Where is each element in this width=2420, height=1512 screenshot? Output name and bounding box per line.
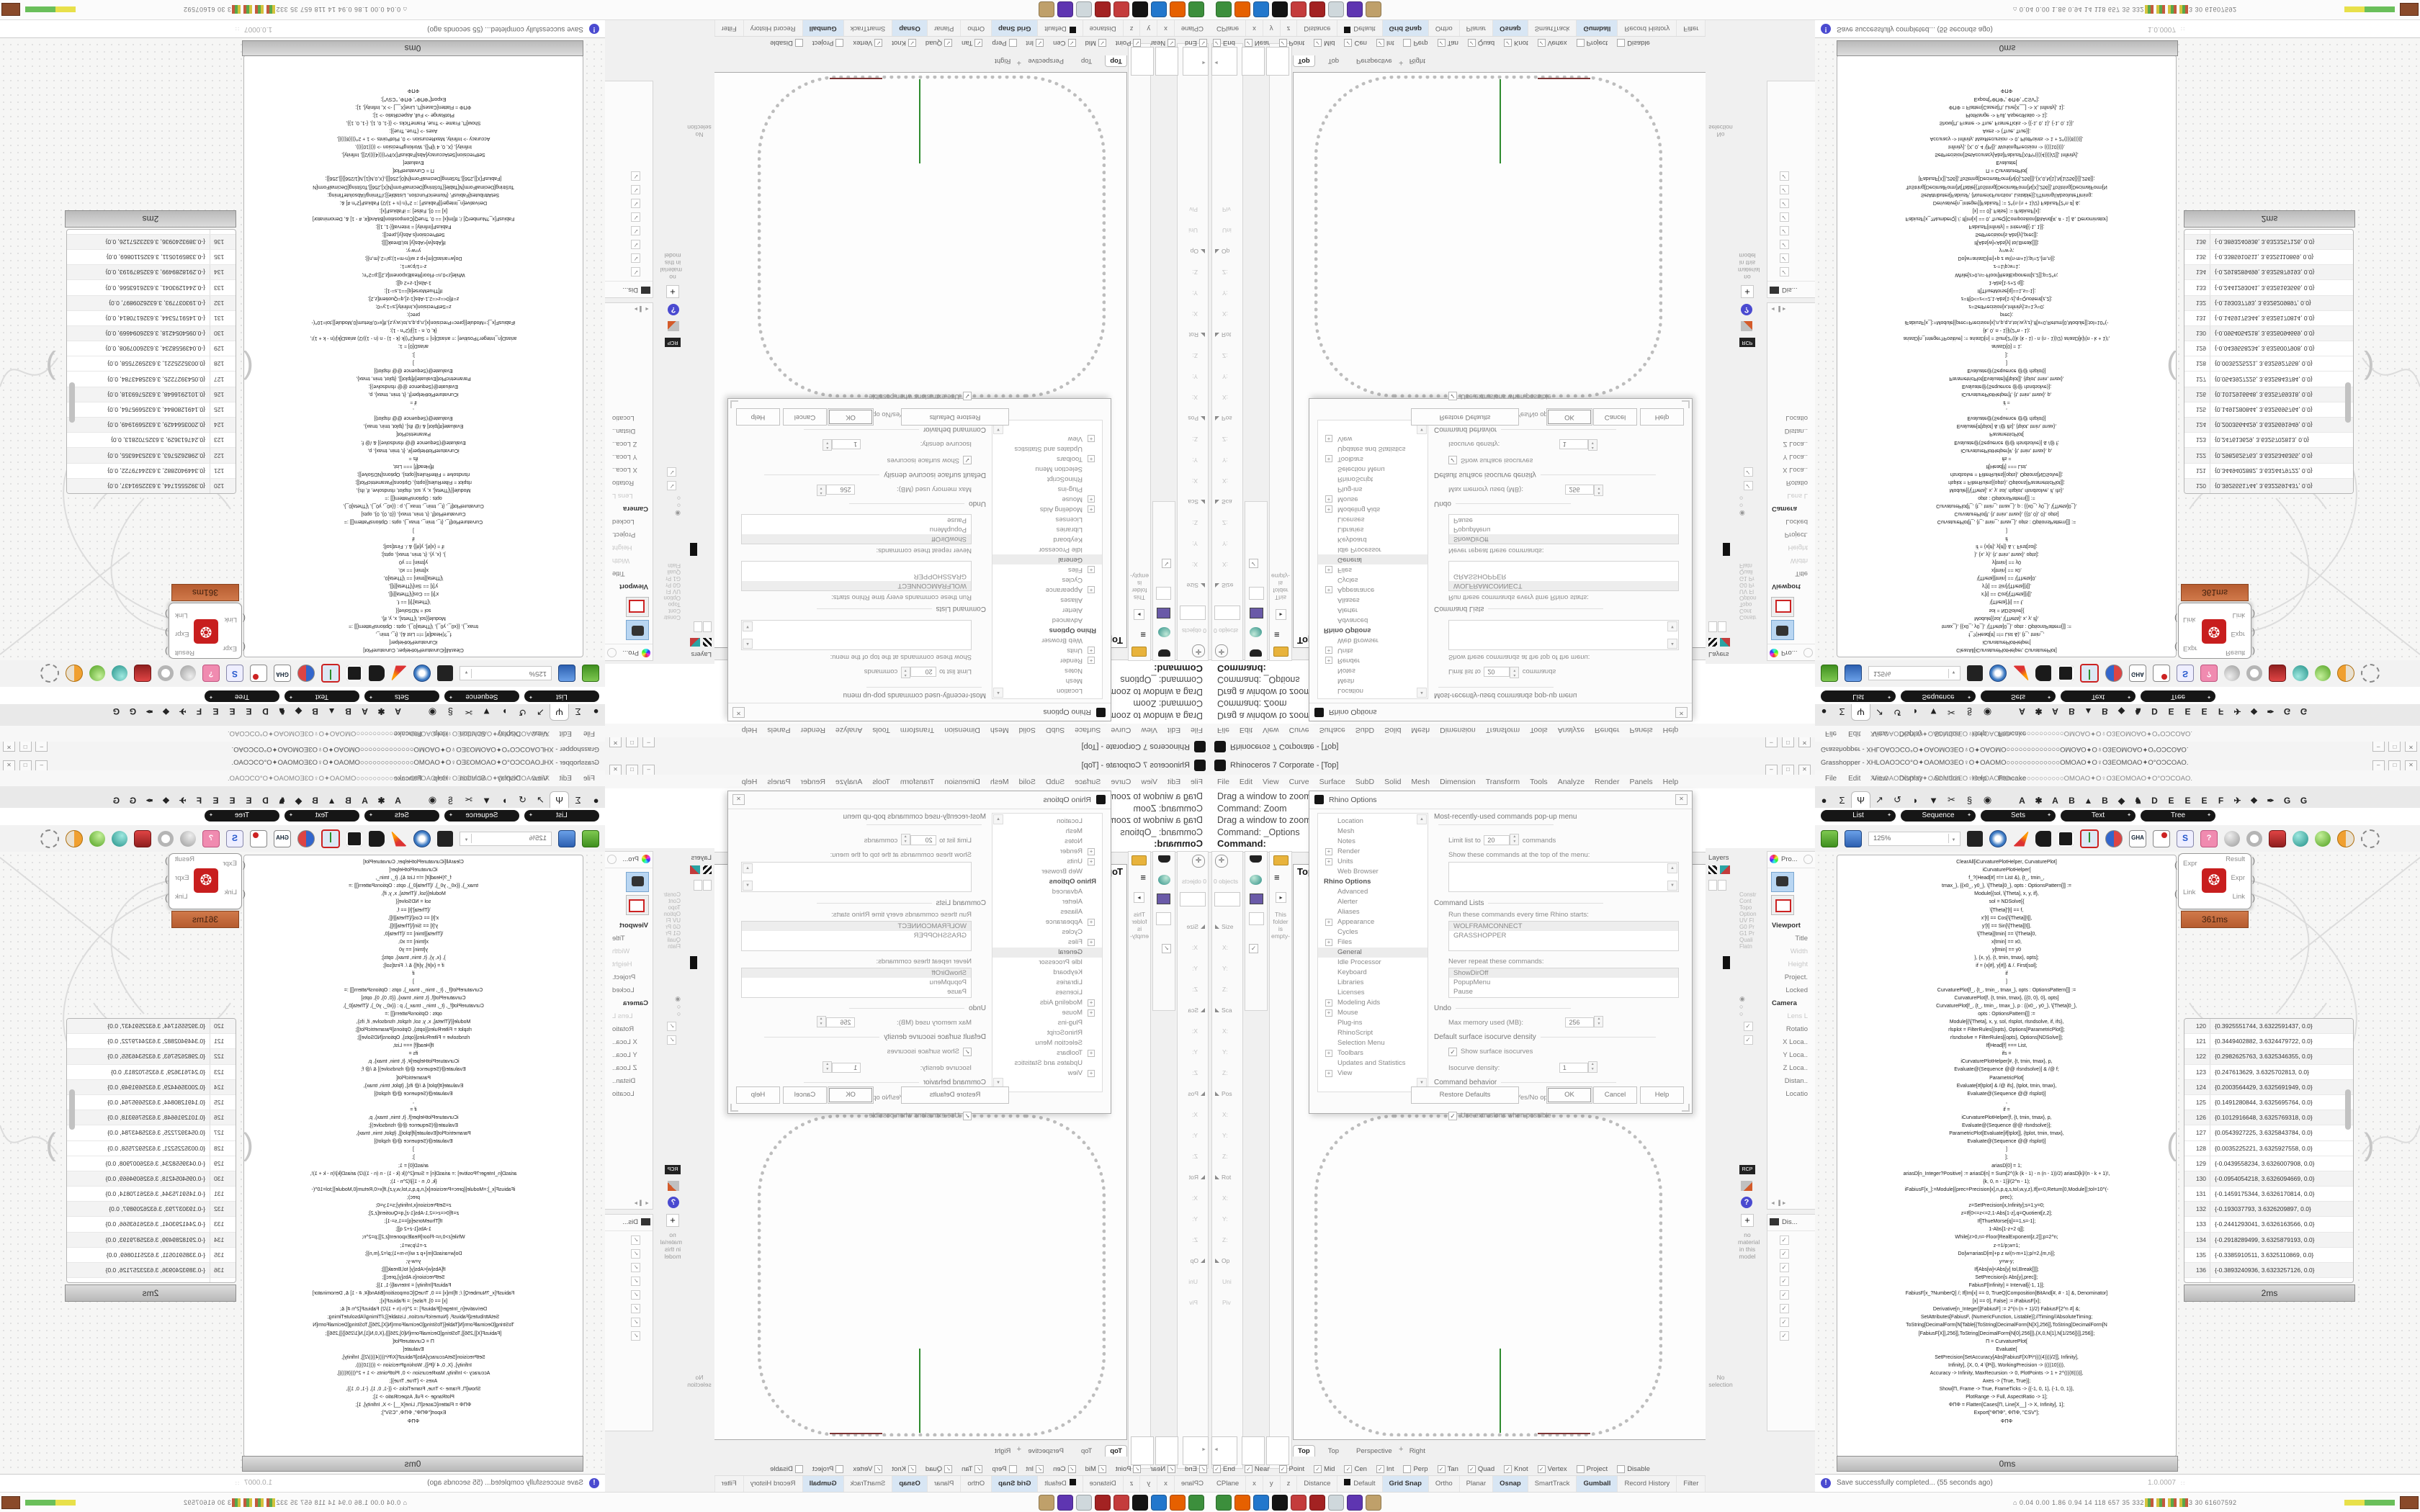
panel-nav-icons[interactable]: ◄ ▐ ► <box>633 1201 650 1206</box>
wolfram-code-panel[interactable]: ClearAll[iCurvaturePlotHelper, Curvature… <box>1837 855 2177 1457</box>
display-check[interactable]: ✓ <box>632 1318 641 1327</box>
display-check[interactable]: ✓ <box>632 1277 641 1286</box>
category-pill[interactable]: Sequence <box>444 690 519 702</box>
osnap-toggle[interactable]: ✓End <box>1185 40 1207 48</box>
viewport-property[interactable]: Locatio <box>1767 1088 1814 1101</box>
category-pill[interactable]: Tree <box>2141 690 2215 702</box>
options-tree-item[interactable]: Selection Menu <box>992 464 1102 474</box>
menu-item[interactable]: Analyze <box>1558 778 1585 786</box>
help-icon[interactable]: ? <box>668 1197 679 1208</box>
swatch-box[interactable] <box>1156 587 1171 600</box>
viewport-tab[interactable]: Perspective <box>1352 55 1397 66</box>
page-icon-1[interactable] <box>1708 880 1717 891</box>
listbox-scroll-down-icon[interactable]: ▼ <box>743 881 753 891</box>
maximize-button[interactable]: □ <box>1782 737 1794 747</box>
status-cell[interactable]: y <box>1263 20 1281 36</box>
notepad-taskbar-icon[interactable] <box>1076 1 1092 17</box>
status-cell[interactable]: SmartTrack <box>1528 1476 1577 1492</box>
behavior-checkbox[interactable]: ✓Use extrusions when possible <box>1448 1108 1686 1121</box>
status-cell[interactable]: z <box>1281 20 1298 36</box>
osnap-toggle[interactable]: ✓Knot <box>1504 40 1528 48</box>
new-viewport-icon[interactable]: + <box>1399 1445 1403 1454</box>
options-tree-item[interactable]: Mesh <box>1318 675 1428 685</box>
options-tree-item[interactable]: Location <box>1318 816 1428 827</box>
component-tab-icon[interactable]: § <box>1960 792 1978 808</box>
preview-eye-icon[interactable] <box>1989 830 2007 847</box>
dialog-resize-grip[interactable] <box>1682 400 1690 408</box>
undo-spinner[interactable]: ▲▼ <box>817 485 826 496</box>
firefox-taskbar-icon[interactable] <box>1234 1495 1250 1511</box>
options-tree-item[interactable]: General <box>1318 948 1428 958</box>
menu-item[interactable]: Dimension <box>1440 778 1476 786</box>
display-check[interactable]: ✓ <box>1780 1290 1789 1300</box>
options-tree-item[interactable]: Updates and Statistics <box>1318 1058 1428 1068</box>
osnap-toggle[interactable]: ✓Cen <box>1344 40 1366 48</box>
options-tree-item[interactable]: Aliases <box>1318 907 1428 917</box>
viewport-property[interactable]: X Loca.. <box>606 463 653 476</box>
viewport-property[interactable]: Z Loca.. <box>606 437 653 450</box>
teal-sphere-icon[interactable] <box>112 831 127 847</box>
output-port-arc[interactable]: ) <box>2252 609 2255 619</box>
viewport-property[interactable]: Z Loca.. <box>1767 1062 1814 1075</box>
osnap-toggle[interactable]: ✓Point <box>1279 1465 1305 1473</box>
viewport-tab[interactable]: Right <box>990 55 1015 66</box>
solver-icon[interactable]: S <box>226 665 243 683</box>
options-tree-item[interactable]: Advanced <box>992 887 1102 897</box>
viewport-property[interactable]: X Loca.. <box>1767 1036 1814 1049</box>
menu-item[interactable]: Surface <box>1319 726 1345 735</box>
status-cell[interactable]: Planar <box>927 1476 960 1492</box>
menu-item[interactable]: Analyze <box>835 778 862 786</box>
plugin-tab[interactable]: ✈ <box>2229 793 2246 808</box>
viewport-property[interactable]: Height <box>1767 541 1814 554</box>
doc-locker-icon[interactable] <box>2153 830 2170 847</box>
never-command-item[interactable]: ShowDirOff <box>742 534 971 544</box>
menu-item[interactable]: Transform <box>1486 726 1520 735</box>
plugin-tab[interactable]: G <box>2295 704 2312 719</box>
dock-checkbox[interactable]: ✓ <box>1162 944 1171 953</box>
osnap-toggle[interactable]: ✓Quad <box>926 1465 952 1473</box>
options-tree-item[interactable]: Plug-ins <box>1318 484 1428 494</box>
tree-scroll-up-icon[interactable]: ▲ <box>1417 814 1427 824</box>
tree-scroll-down-icon[interactable]: ▼ <box>1417 424 1427 434</box>
status-cell[interactable]: Distance <box>1297 20 1337 36</box>
options-tree-item[interactable]: Notes <box>1318 837 1428 847</box>
rhino-window-titlebar[interactable]: Rhinoceros 7 Corporate - [Top] – □ ✕ <box>1210 756 1815 775</box>
options-tree-item[interactable]: Idle Processor <box>1318 544 1428 554</box>
options-tree-item[interactable]: Toolbars <box>992 454 1102 464</box>
side-check-1[interactable]: ✓ <box>1744 1022 1753 1031</box>
rhino-options-dialog[interactable]: Rhino Options ✕ LocationMeshNotesRenderU… <box>1309 398 1693 721</box>
osnap-toggle[interactable]: ✓Quad <box>1468 40 1494 48</box>
viewport-tab[interactable]: Top <box>1293 55 1315 67</box>
category-pill[interactable]: Text <box>2061 690 2136 702</box>
menu-item[interactable]: View <box>1263 726 1279 735</box>
viewport-property[interactable]: Project. <box>1767 971 1814 984</box>
display-check[interactable]: ✓ <box>1780 1304 1789 1313</box>
viewport-tab[interactable]: Top <box>1077 55 1096 66</box>
viewport-property[interactable]: Z Loca.. <box>606 1062 653 1075</box>
status-cell[interactable]: SmartTrack <box>843 20 892 36</box>
display-check[interactable]: ✓ <box>1780 212 1789 222</box>
display-check[interactable]: ✓ <box>1780 199 1789 208</box>
filter-input[interactable] <box>1214 892 1240 906</box>
component-tab-icon[interactable]: ↗ <box>1870 704 1888 721</box>
category-pill[interactable]: List <box>1821 690 1896 702</box>
status-cell[interactable]: z <box>1123 1476 1140 1492</box>
plugin-tab[interactable]: ❖ <box>158 704 174 719</box>
swatch-box[interactable] <box>1156 912 1171 925</box>
input-port-arc[interactable]: ( <box>243 860 246 870</box>
options-tree-item[interactable]: View <box>1318 433 1428 444</box>
help-icon[interactable]: ? <box>668 304 679 315</box>
table-scrollbar[interactable] <box>2345 1089 2351 1130</box>
menu-item[interactable]: View <box>1141 778 1157 786</box>
status-cell[interactable]: Planar <box>927 20 960 36</box>
menu-item[interactable]: Surface <box>1075 726 1101 735</box>
brush-icon[interactable] <box>668 1181 679 1191</box>
ring-icon[interactable] <box>158 831 174 847</box>
display-tab-label[interactable]: Dis... <box>622 286 638 294</box>
menu-item[interactable]: Panels <box>767 778 790 786</box>
options-tree-item[interactable]: Notes <box>992 837 1102 847</box>
green-sphere-icon[interactable] <box>89 831 105 847</box>
component-tab-icon[interactable]: § <box>1960 704 1978 720</box>
mystery-box-icon[interactable]: ? <box>202 830 220 847</box>
wire-pen-icon[interactable] <box>2013 666 2029 682</box>
page-icon-2[interactable] <box>694 880 702 891</box>
cap-icon[interactable] <box>1250 855 1262 863</box>
options-tree-item[interactable]: Appearance <box>1318 585 1428 595</box>
osnap-toggle[interactable]: ✓Int <box>1026 1465 1044 1473</box>
component-tab-icon[interactable]: Σ <box>569 704 587 720</box>
save-file-icon[interactable] <box>558 665 575 683</box>
viewport-property[interactable]: Width <box>1767 554 1814 567</box>
floppy-save-taskbar-icon[interactable] <box>1253 1 1269 17</box>
menu-item[interactable]: Render <box>801 778 825 786</box>
sphere-icon[interactable] <box>1250 627 1262 637</box>
viewport-property[interactable]: Title <box>606 932 653 945</box>
floppy-save-taskbar-icon[interactable] <box>1151 1495 1167 1511</box>
layer-swatch[interactable] <box>690 956 697 969</box>
layers-tab[interactable]: Layers <box>691 650 712 658</box>
options-tree-item[interactable]: Aliases <box>992 595 1102 605</box>
help-icon[interactable]: ? <box>1741 304 1752 315</box>
minimize-button[interactable]: – <box>35 760 48 771</box>
gray-sphere-icon[interactable] <box>180 831 196 847</box>
status-cell[interactable]: Filter <box>1677 1476 1706 1492</box>
grasshopper-canvas[interactable]: ClearAll[iCurvaturePlotHelper, Curvature… <box>1815 852 2420 1474</box>
brush-icon[interactable] <box>1741 321 1752 331</box>
teal-sphere-icon[interactable] <box>112 666 127 682</box>
display-check[interactable]: ✓ <box>632 1290 641 1300</box>
save-file-icon[interactable] <box>1845 665 1862 683</box>
speaker-icon[interactable] <box>346 831 362 847</box>
status-cell[interactable]: Gumball <box>1577 1476 1618 1492</box>
doc-locker-icon[interactable] <box>250 665 267 683</box>
viewport-property[interactable]: Title <box>1767 932 1814 945</box>
never-command-item[interactable]: ShowDirOff <box>742 968 971 978</box>
rhino-app-taskbar-icon[interactable] <box>1272 1495 1288 1511</box>
plugin-tab[interactable]: ♞ <box>274 793 290 808</box>
osnap-toggle[interactable]: Project <box>1577 40 1608 48</box>
help-button[interactable]: Help <box>1640 1086 1684 1104</box>
dock-checkbox[interactable]: ✓ <box>1249 559 1258 568</box>
osnap-toggle[interactable]: ✓End <box>1213 40 1235 48</box>
status-cell[interactable]: z <box>1123 20 1140 36</box>
maximize-button[interactable]: □ <box>626 765 638 775</box>
rhino-window-titlebar[interactable]: Rhinoceros 7 Corporate - [Top] – □ ✕ <box>605 737 1210 756</box>
menu-item[interactable]: Edit <box>1848 775 1860 783</box>
palette-taskbar-icon[interactable] <box>1366 1 1381 17</box>
dialog-close-icon[interactable]: ✕ <box>1675 707 1688 718</box>
options-tree-item[interactable]: Mouse <box>992 494 1102 504</box>
status-cell[interactable]: CPlane <box>1174 20 1210 36</box>
minimize-button[interactable]: – <box>1765 765 1778 775</box>
maximize-button[interactable]: □ <box>19 760 32 771</box>
component-tab-icon[interactable]: ↗ <box>1870 791 1888 808</box>
display-check[interactable]: ✓ <box>632 267 641 276</box>
viewport-property[interactable]: Locked <box>606 984 653 997</box>
osnap-toggle[interactable]: ✓Int <box>1376 1465 1394 1473</box>
plugin-tab[interactable]: ▲ <box>323 793 340 808</box>
display-check[interactable]: ✓ <box>1780 253 1789 263</box>
viewport-property[interactable]: Locked <box>1767 515 1814 528</box>
menu-item[interactable]: Render <box>801 726 825 735</box>
plugin-tab[interactable]: ▲ <box>2080 793 2097 808</box>
data-table-panel[interactable]: 120{0.3925551744, 3.6322591437, 0.0}121{… <box>2184 229 2354 494</box>
options-tree-item[interactable]: Aliases <box>1318 595 1428 605</box>
plugin-tab[interactable]: E <box>2163 704 2179 719</box>
viewport-tab[interactable]: Perspective <box>1023 1446 1068 1457</box>
plugin-tab[interactable]: ✈ <box>174 704 191 719</box>
grasshopper-titlebar[interactable]: Grasshopper - XHLOAOƆCO°O✦OAOMO3EO♀O✦OAO… <box>0 756 605 771</box>
side-check-2[interactable]: ✓ <box>668 1035 677 1045</box>
category-pill[interactable]: Sets <box>364 810 439 822</box>
folder-icon[interactable] <box>1273 855 1289 865</box>
new-viewport-icon[interactable]: + <box>1399 58 1403 67</box>
viewport-property[interactable]: Y Loca.. <box>1767 450 1814 463</box>
teal-sphere-icon[interactable] <box>2293 831 2308 847</box>
options-tree-item[interactable]: Keyboard <box>992 534 1102 544</box>
behavior-checkbox[interactable]: ✓Use extrusions when possible <box>1448 391 1686 404</box>
zoom-dropdown[interactable]: 125% ▼ <box>460 832 552 846</box>
grasshopper-canvas[interactable]: ClearAll[iCurvaturePlotHelper, Curvature… <box>0 38 605 660</box>
expression-component[interactable]: ( Expr ( Link Result ) Expr ) Link ) ❂ <box>2178 853 2251 909</box>
notepad-taskbar-icon[interactable] <box>1328 1495 1344 1511</box>
options-tree-item[interactable]: General <box>992 948 1102 958</box>
viewport-property[interactable]: Distan.. <box>1767 424 1814 437</box>
viewport-property[interactable]: Lens L <box>606 489 653 502</box>
save-file-icon[interactable] <box>558 830 575 847</box>
restore-defaults-button[interactable]: Restore Defaults <box>901 1086 1009 1104</box>
menu-item[interactable]: File <box>583 775 595 783</box>
sphere-icon[interactable] <box>1158 627 1170 637</box>
status-cell[interactable]: Grid Snap <box>1383 1476 1429 1492</box>
viewport-property[interactable]: Camera <box>606 997 653 1010</box>
plugin-tab[interactable]: D <box>257 704 274 719</box>
output-port-arc[interactable]: ) <box>165 647 168 657</box>
output-port-arc[interactable]: ) <box>2252 893 2255 903</box>
osnap-toggle[interactable]: ✓Quad <box>1468 1465 1494 1473</box>
plugin-tab[interactable]: A <box>357 704 373 719</box>
viewport-property[interactable]: Width <box>606 945 653 958</box>
folder-icon[interactable] <box>1131 855 1147 865</box>
rhino-window-titlebar[interactable]: Rhinoceros 7 Corporate - [Top] – □ ✕ <box>605 756 1210 775</box>
menu-item[interactable]: Surface <box>1319 778 1345 786</box>
status-cell[interactable]: Default <box>1038 1476 1083 1492</box>
help-button[interactable]: Help <box>736 408 780 426</box>
display-check[interactable]: ✓ <box>1780 226 1789 235</box>
viewport-colors-icon[interactable] <box>690 865 700 874</box>
osnap-toggle[interactable]: Project <box>812 1465 844 1473</box>
options-tree-item[interactable]: Toolbars <box>1318 1048 1428 1058</box>
menu-item[interactable]: Mesh <box>1411 726 1430 735</box>
menu-item[interactable]: Edit <box>1240 778 1252 786</box>
dialog-resize-grip[interactable] <box>730 1104 738 1112</box>
terminal-taskbar-icon[interactable] <box>1216 1 1232 17</box>
help-icon[interactable]: ? <box>1741 1197 1752 1208</box>
viewport-property[interactable]: Distan.. <box>606 424 653 437</box>
status-cell[interactable]: Grid Snap <box>991 1476 1037 1492</box>
status-cell[interactable]: Gumball <box>802 1476 843 1492</box>
selection-circle-icon[interactable] <box>40 665 59 683</box>
options-tree-item[interactable]: Alerter <box>1318 897 1428 907</box>
dialog-close-icon[interactable]: ✕ <box>732 707 745 718</box>
viewport-tab[interactable]: Top <box>1324 1446 1343 1457</box>
ok-button[interactable]: OK <box>1546 1086 1592 1104</box>
undo-input[interactable]: 256 <box>1565 485 1594 495</box>
options-tree-item[interactable]: Selection Menu <box>1318 1038 1428 1048</box>
gear-icon[interactable] <box>607 855 617 864</box>
mystery-box-icon[interactable]: ? <box>2200 830 2218 847</box>
fabius-curve-points[interactable] <box>1314 76 1662 397</box>
isocurve-checkbox[interactable]: ✓ <box>963 456 972 464</box>
never-command-item[interactable]: Pause <box>1449 987 1678 996</box>
gear-icon[interactable] <box>1803 648 1813 657</box>
viewport-property[interactable]: Y Loca.. <box>606 450 653 463</box>
dialog-titlebar[interactable]: Rhino Options ✕ <box>728 791 1111 809</box>
output-port-arc[interactable]: ) <box>2252 855 2255 865</box>
options-tree-item[interactable]: Plug-ins <box>1318 1018 1428 1028</box>
rhino-app-taskbar-icon[interactable] <box>1132 1 1148 17</box>
rhino-app-taskbar-icon[interactable] <box>1132 1495 1148 1511</box>
menu-item[interactable]: Curve <box>1289 726 1309 735</box>
status-resize-grip[interactable]: ∷ <box>236 1480 239 1487</box>
output-port-arc[interactable]: ) <box>165 893 168 903</box>
status-cell[interactable]: Ortho <box>1429 20 1460 36</box>
display-check[interactable]: ✓ <box>632 199 641 208</box>
output-port-arc[interactable]: ) <box>2252 647 2255 657</box>
menu-item[interactable]: Panels <box>1630 726 1653 735</box>
viewport-property[interactable]: Project. <box>606 971 653 984</box>
layers-tab[interactable]: Layers <box>1708 650 1729 658</box>
gray-sphere-icon[interactable] <box>2224 831 2240 847</box>
axes-widget-icon[interactable] <box>321 665 340 683</box>
close-button[interactable]: ✕ <box>1798 765 1811 775</box>
viewport-property[interactable]: Height <box>606 958 653 971</box>
table-scrollbar[interactable] <box>2345 382 2351 423</box>
viewport-tab[interactable]: Top <box>1293 1445 1315 1457</box>
menu-item[interactable]: Panels <box>767 726 790 735</box>
zoom-extents-icon[interactable] <box>437 831 453 847</box>
help-button[interactable]: Help <box>1640 408 1684 426</box>
page-icon-1[interactable] <box>1708 621 1717 632</box>
viewport-property[interactable]: X Loca.. <box>606 1036 653 1049</box>
status-cell[interactable]: SmartTrack <box>1528 20 1577 36</box>
gumball-icon[interactable]: ✛ <box>1192 644 1205 657</box>
firefox-taskbar-icon[interactable] <box>1234 1 1250 17</box>
options-tree-item[interactable]: Location <box>1318 685 1428 696</box>
options-tree-item[interactable]: Idle Processor <box>1318 958 1428 968</box>
expand-button[interactable]: ▸ <box>1276 609 1286 620</box>
category-pill[interactable]: List <box>524 810 599 822</box>
osnap-toggle[interactable]: Perp <box>1403 1465 1428 1473</box>
display-check[interactable]: ✓ <box>632 240 641 249</box>
viewport-property[interactable]: Rotatio <box>606 476 653 489</box>
page-icon-2[interactable] <box>1718 880 1726 891</box>
display-check[interactable]: ✓ <box>632 1304 641 1313</box>
gear-red-1-taskbar-icon[interactable] <box>1113 1495 1129 1511</box>
options-tree-item[interactable]: Idle Processor <box>992 958 1102 968</box>
never-command-item[interactable]: ShowDirOff <box>1449 534 1678 544</box>
viewport-property[interactable]: Camera <box>1767 997 1814 1010</box>
viewport-property[interactable]: Camera <box>1767 502 1814 515</box>
plugin-tab[interactable]: E <box>241 704 257 719</box>
minimize-button[interactable]: – <box>35 741 48 752</box>
component-tab-icon[interactable]: ◗ <box>496 704 514 720</box>
tree-scroll-up-icon[interactable]: ▲ <box>993 814 1003 824</box>
status-cell[interactable]: Ortho <box>1429 1476 1460 1492</box>
status-cell[interactable]: Filter <box>714 1476 743 1492</box>
status-cell[interactable]: CPlane <box>1210 20 1246 36</box>
notepad-taskbar-icon[interactable] <box>1328 1 1344 17</box>
ring-icon[interactable] <box>2246 666 2262 682</box>
viewport-property[interactable]: Viewport <box>1767 919 1814 932</box>
red-cylinder-icon[interactable] <box>2269 665 2286 683</box>
options-tree-item[interactable]: Advanced <box>992 615 1102 625</box>
viewport-property[interactable]: Viewport <box>1767 580 1814 593</box>
menu-item[interactable]: Surface <box>1075 778 1101 786</box>
options-tree-item[interactable]: Alerter <box>992 605 1102 615</box>
menu-item[interactable]: File <box>1217 726 1229 735</box>
viewport-tab[interactable]: Top <box>1077 1446 1096 1457</box>
component-tab-icon[interactable]: ↺ <box>514 791 532 808</box>
menu-item[interactable]: Dimension <box>1440 726 1476 735</box>
output-port-arc[interactable]: ) <box>2252 628 2255 638</box>
listbox-scroll-down-icon[interactable]: ▼ <box>743 621 753 631</box>
save-file-icon[interactable] <box>1845 830 1862 847</box>
menu-item[interactable]: Solid <box>1384 778 1401 786</box>
listbox-scroll-up-icon[interactable]: ▲ <box>1667 863 1677 873</box>
close-button[interactable]: ✕ <box>3 760 15 771</box>
display-check[interactable]: ✓ <box>1780 1331 1789 1341</box>
options-tree-item[interactable]: RhinoScript <box>1318 1028 1428 1038</box>
page-icon-1[interactable] <box>703 621 712 632</box>
viewport-property[interactable]: Locatio <box>1767 411 1814 424</box>
limit-input[interactable]: 20 <box>910 835 936 845</box>
plugin-tab[interactable]: ✈ <box>2229 704 2246 719</box>
options-tree-item[interactable]: Selection Menu <box>992 1038 1102 1048</box>
osnap-toggle[interactable]: ✓End <box>1185 1465 1207 1473</box>
limit-spinner[interactable]: ▲▼ <box>1510 834 1519 845</box>
minimize-button[interactable]: – <box>642 737 655 747</box>
cancel-button[interactable]: Cancel <box>783 1086 827 1104</box>
options-tree-item[interactable]: View <box>1318 1068 1428 1079</box>
options-tree-item[interactable]: Web Browser <box>992 635 1102 645</box>
category-pill[interactable]: Sets <box>1981 810 2056 822</box>
menu-item[interactable]: Transform <box>1486 778 1520 786</box>
